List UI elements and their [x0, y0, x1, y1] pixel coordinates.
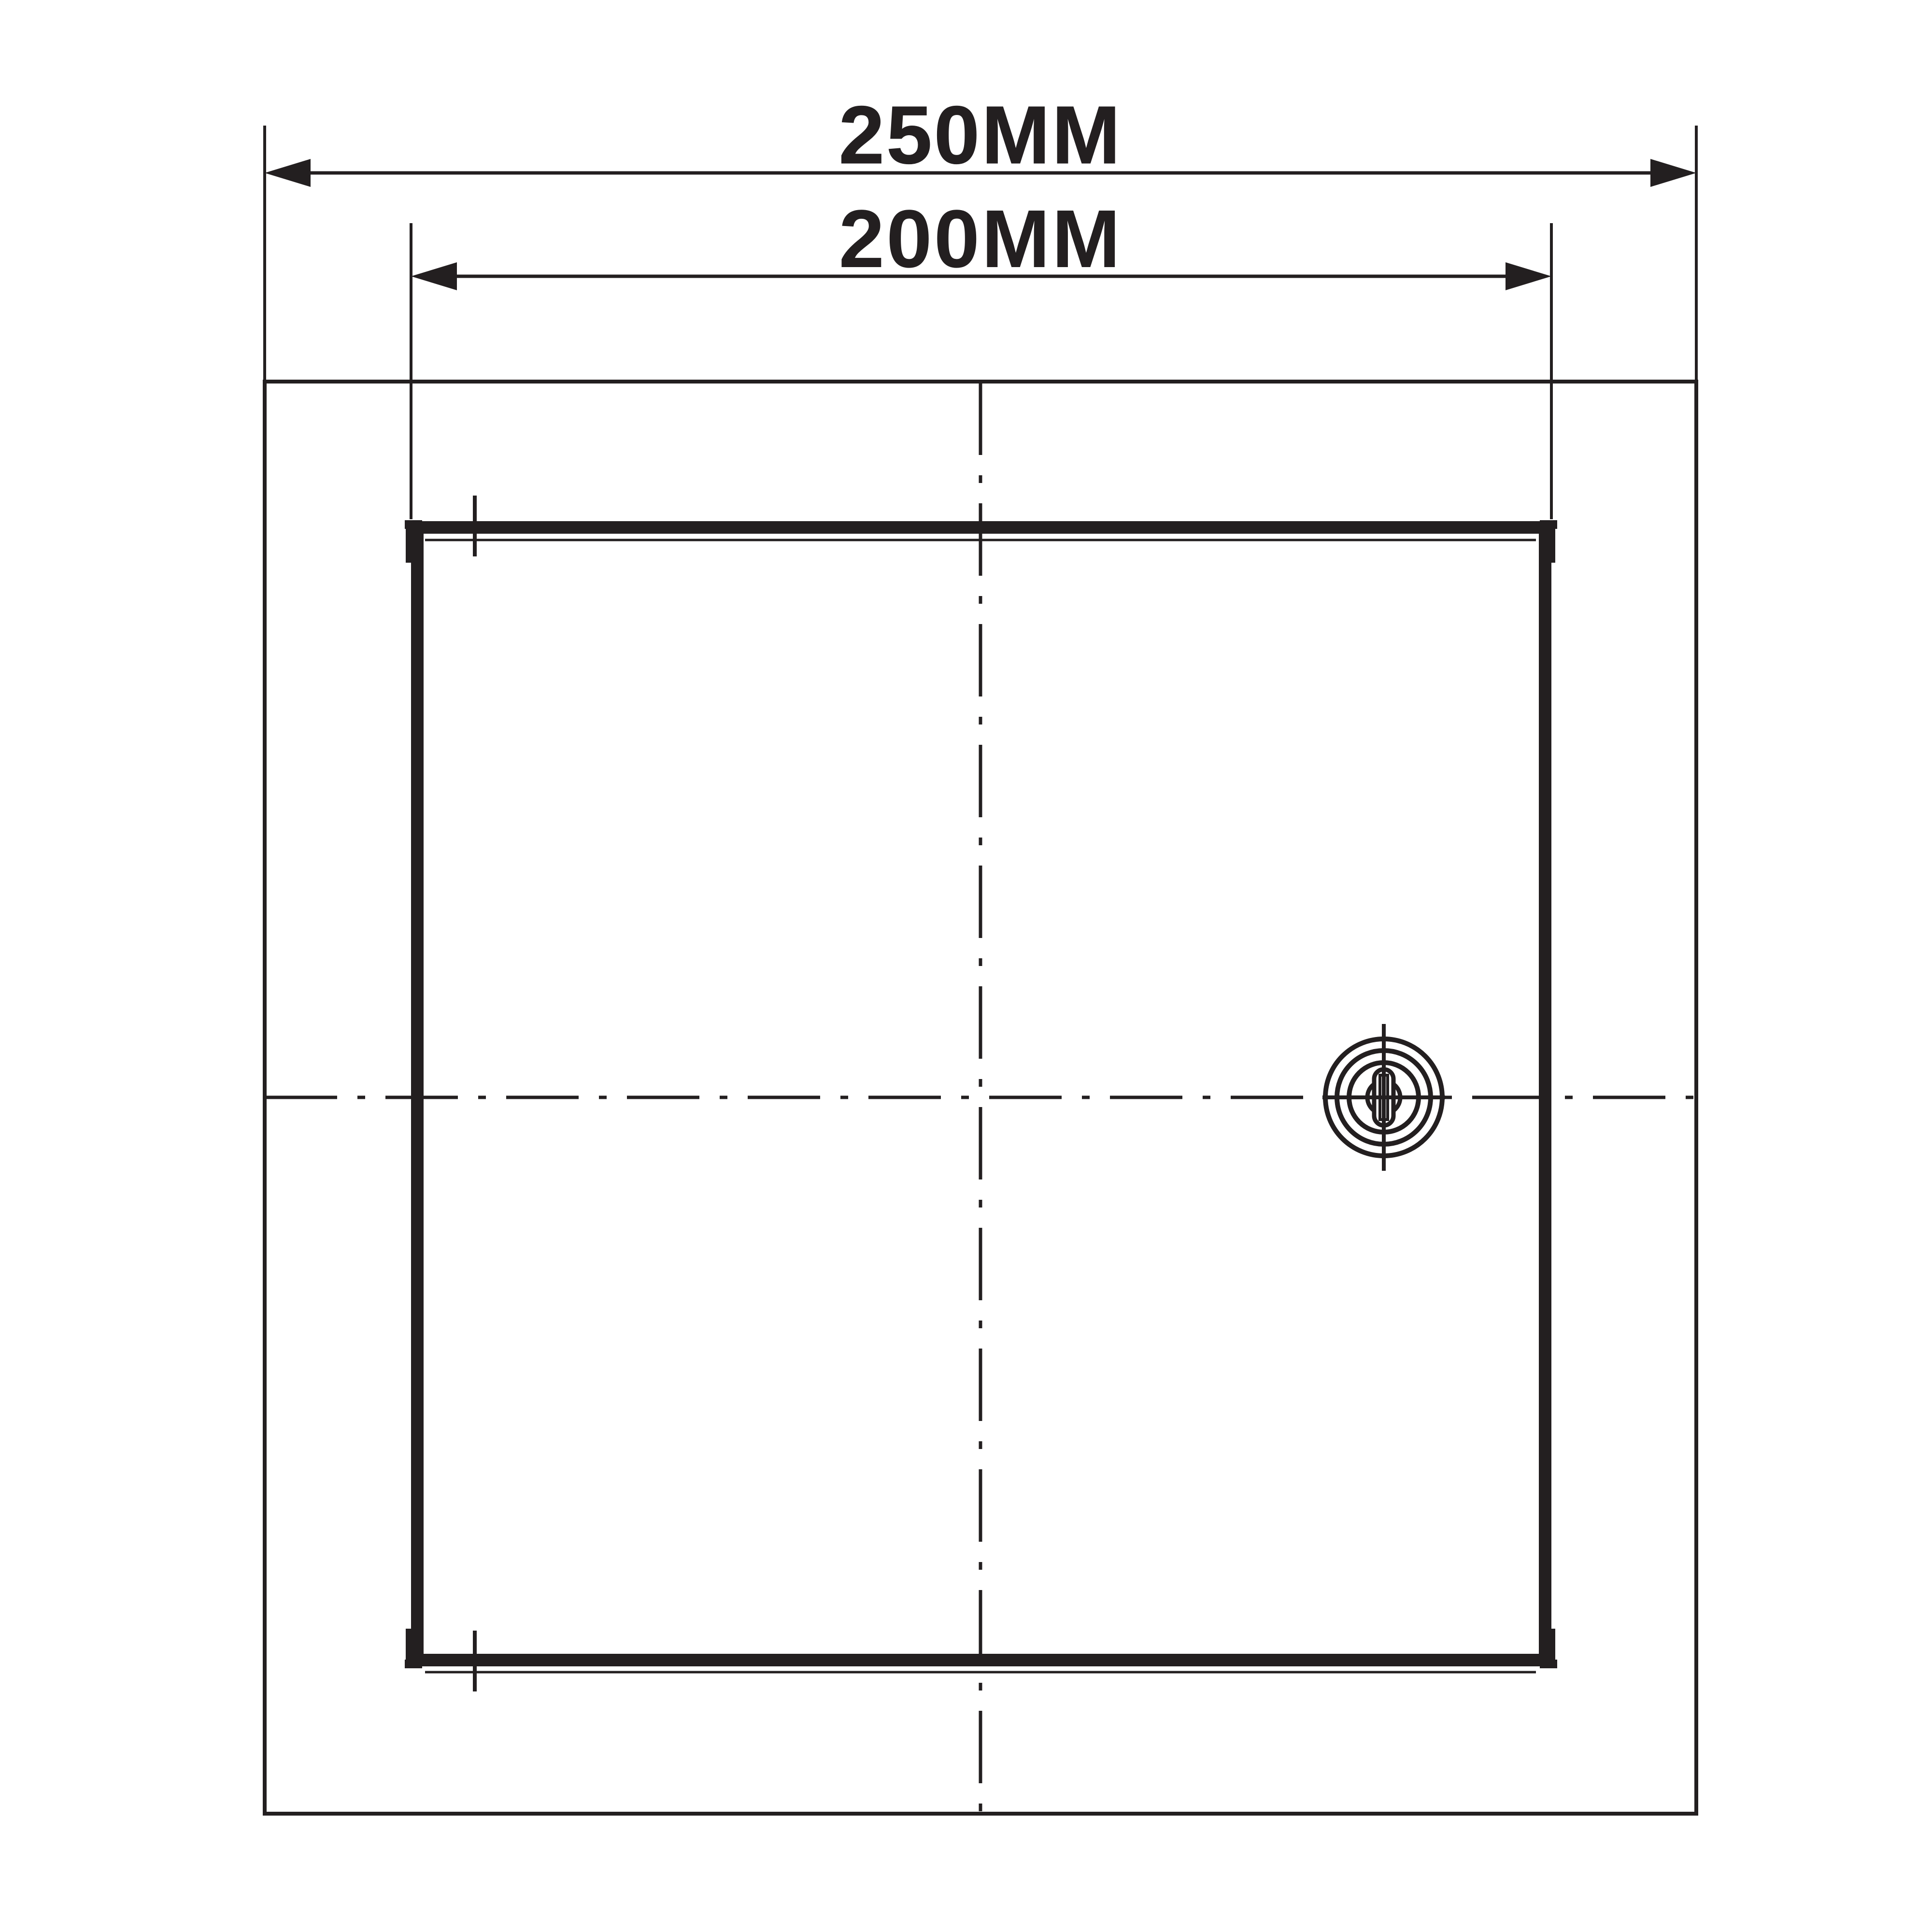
- corner-step-right-bottom: [1548, 1629, 1555, 1667]
- dim-arrow-right-icon: [1650, 159, 1696, 187]
- corner-step-right-top: [1548, 524, 1555, 563]
- dimension-label-door: 200MM: [839, 193, 1122, 285]
- cam-lock-icon: [1322, 1024, 1445, 1171]
- corner-step-left-top: [406, 524, 412, 563]
- dim-arrow-left-icon: [265, 159, 311, 187]
- access-panel-technical-drawing: 250MM 200MM: [0, 0, 1932, 1932]
- dim-arrow-right-icon: [1506, 262, 1551, 290]
- dim-arrow-left-icon: [411, 262, 457, 290]
- dimension-label-overall: 250MM: [839, 89, 1122, 181]
- dimension-door: 200MM: [411, 193, 1551, 519]
- corner-step-left-bottom: [406, 1629, 412, 1667]
